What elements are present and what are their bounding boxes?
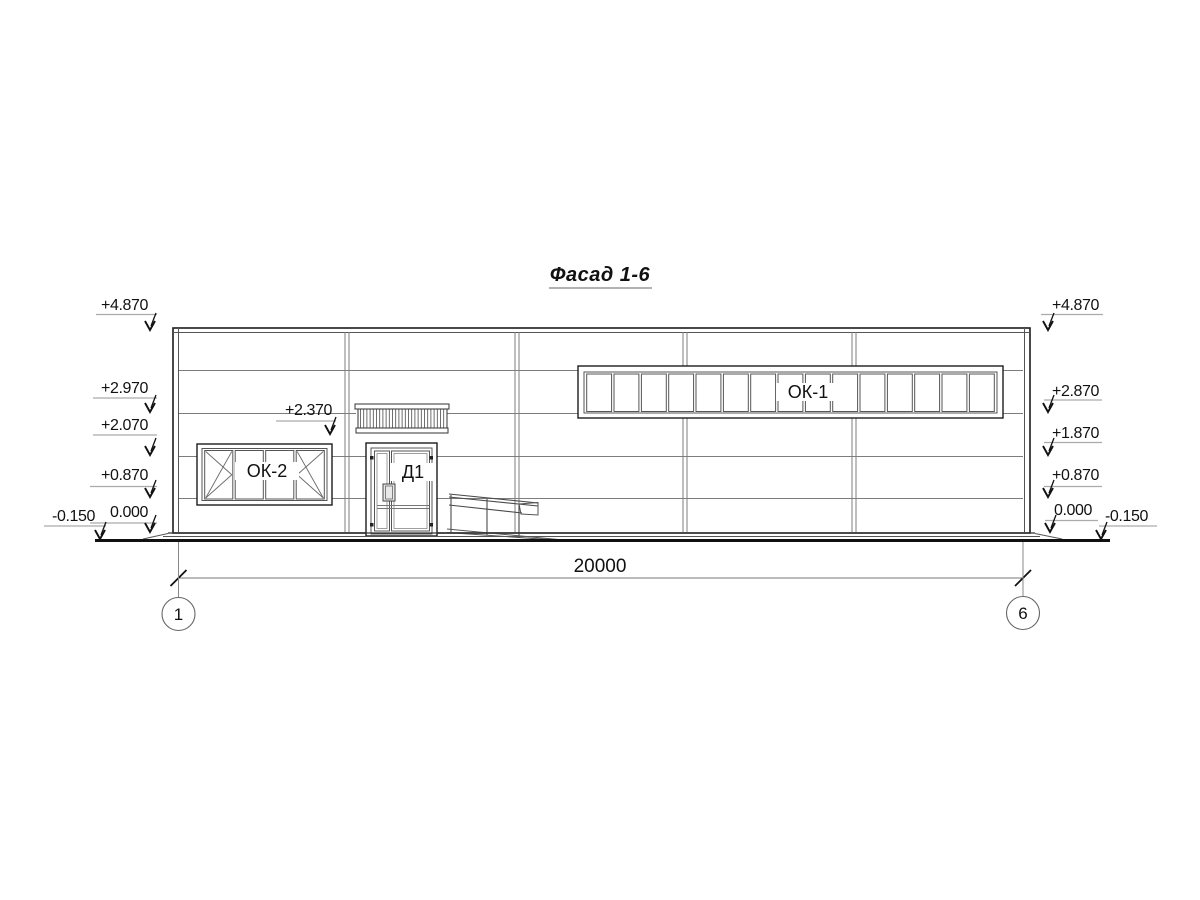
entrance-door-d1	[366, 443, 437, 536]
level-right-2870: +2.870	[1052, 384, 1112, 400]
level-right-4870: +4.870	[1052, 298, 1112, 314]
level-left-4870: +4.870	[90, 298, 148, 314]
level-left-2070: +2.070	[90, 418, 148, 434]
axis-number-1: 1	[160, 606, 197, 623]
level-right-minus0150: -0.150	[1105, 509, 1165, 525]
ribbon-window-label: ОК-1	[776, 383, 840, 401]
entrance-canopy	[355, 404, 449, 433]
ground-line	[95, 533, 1110, 541]
drawing-title: Фасад 1-6	[500, 265, 700, 285]
door-handle-icon	[383, 484, 395, 501]
level-left-0000: 0.000	[90, 505, 148, 521]
facade-drawing-sheet: Фасад 1-6 +4.870 +2.970 +2.070 +0.870 0.…	[0, 0, 1200, 900]
level-right-1870: +1.870	[1052, 426, 1112, 442]
left-window-label: ОК-2	[235, 462, 299, 480]
door-label: Д1	[391, 463, 435, 481]
axis-number-6: 6	[1004, 605, 1042, 622]
level-left-minus0150: -0.150	[40, 509, 95, 525]
level-left-0870: +0.870	[90, 468, 148, 484]
facade-geometry	[0, 0, 1200, 900]
level-canopy-2370: +2.370	[272, 403, 332, 419]
level-left-2970: +2.970	[90, 381, 148, 397]
overall-dimension: 20000	[560, 557, 640, 576]
level-right-0870: +0.870	[1052, 468, 1112, 484]
